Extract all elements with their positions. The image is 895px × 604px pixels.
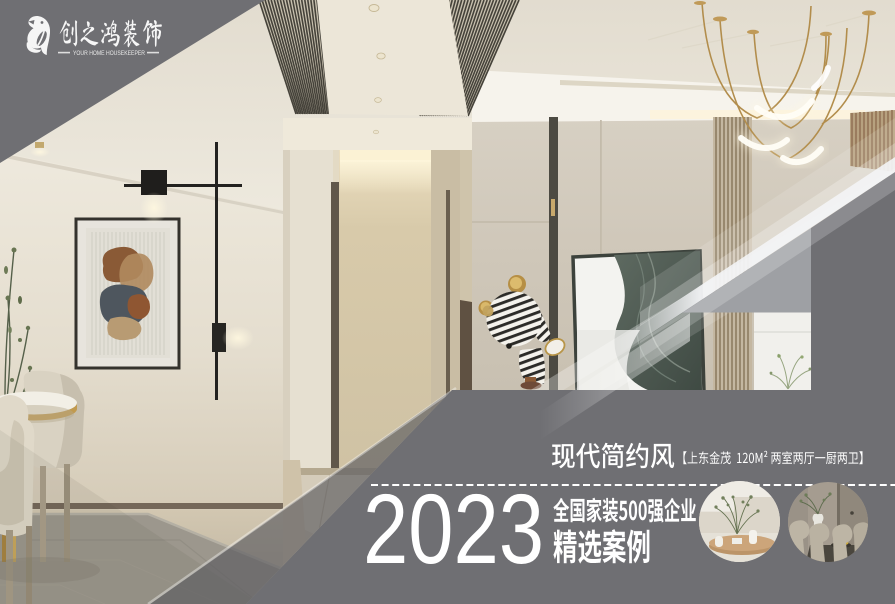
svg-text:YOUR HOME HOUSEKEEPER: YOUR HOME HOUSEKEEPER	[73, 50, 145, 57]
